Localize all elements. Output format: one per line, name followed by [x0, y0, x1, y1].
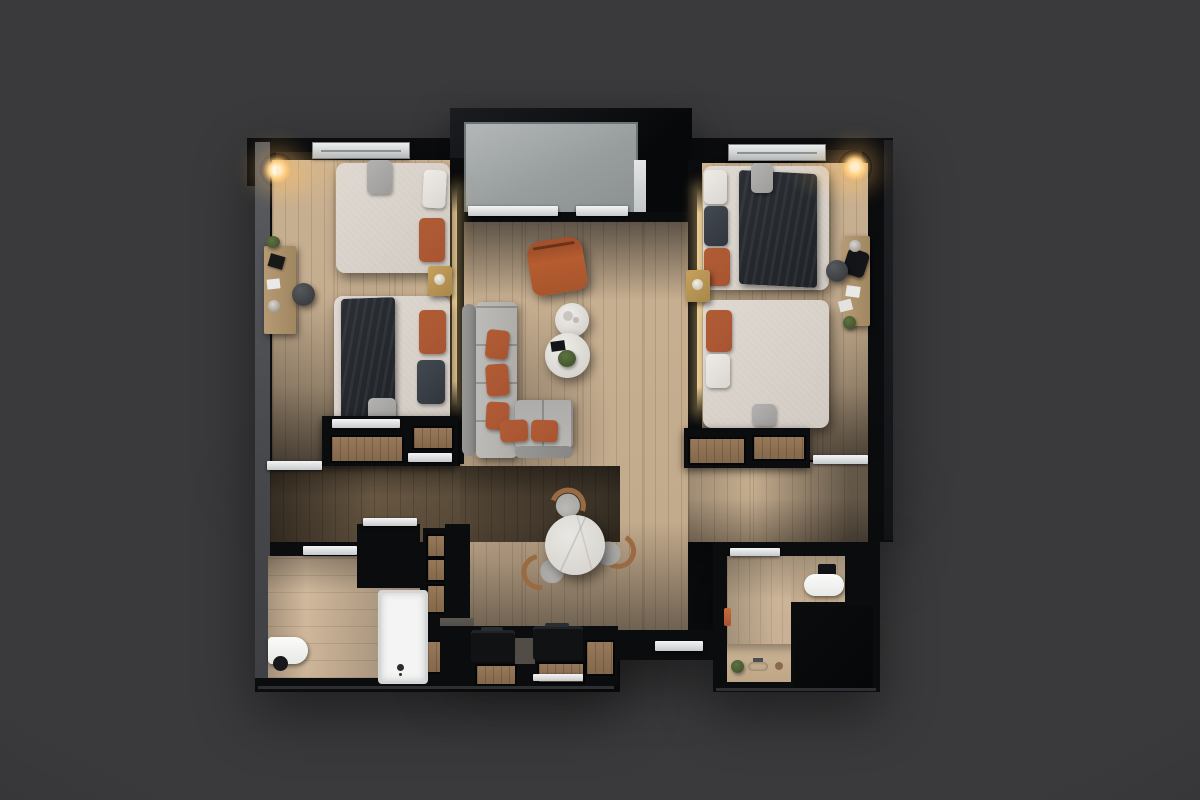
luggage-bench-2-handle [545, 623, 569, 627]
kitchen-wood-niche-1 [475, 664, 517, 686]
ceiling-light-right [838, 150, 872, 184]
wardrobe-left-panel-2 [412, 426, 454, 450]
floor-corridor-right [688, 462, 868, 542]
wardrobe-right-door-sill [813, 455, 868, 464]
entry-threshold-sill-left [468, 206, 558, 216]
sofa-seat-pad-2 [531, 420, 559, 443]
lamp-left [434, 274, 445, 285]
shelf-cubby-2 [426, 558, 446, 582]
floor-plan-render [0, 0, 1200, 800]
pillow-white-right-bottom [706, 354, 730, 388]
luggage-bench-1 [471, 630, 515, 662]
pillow-orange-right-bottom [706, 310, 732, 352]
sofa-pillow-1 [485, 329, 511, 360]
tray-left-desk [268, 300, 280, 312]
plant-coffee-table [558, 350, 576, 367]
shelf-cubby-3 [426, 584, 446, 614]
bath-left-door-sill-1 [303, 546, 357, 555]
pillow-white-right-top [704, 170, 727, 204]
vanity-soap [775, 662, 783, 670]
shower-dark-right [793, 606, 873, 688]
entry-threshold-sill-right [576, 206, 628, 216]
plant-right-desk [843, 316, 856, 329]
shelf-cubby-1 [426, 534, 446, 558]
corridor-left-door-sill [267, 461, 322, 470]
tray-right-desk [849, 240, 861, 252]
living-bottom-door-sill [655, 641, 703, 651]
outer-wall-right-face [884, 140, 893, 540]
coffee-table-small-dishes [563, 311, 573, 321]
paper-left-desk [267, 278, 281, 289]
towel-orange [724, 608, 731, 626]
lounge-chair-orange [525, 235, 589, 297]
pouf-left [292, 283, 315, 306]
led-strip-left-bedroom [452, 186, 457, 408]
bath-right-door-sill [730, 548, 780, 556]
outer-wall-bottom-edge-right [716, 688, 876, 691]
entry-landing-floor [464, 122, 638, 216]
pillow-white-left-top [422, 169, 447, 208]
outer-wall-bottom-edge-left [258, 686, 614, 689]
vanity-plant [731, 660, 744, 673]
entry-side-panel [634, 160, 646, 212]
sofa-pillow-2 [485, 363, 510, 397]
wardrobe-right-panel-1 [688, 437, 746, 465]
pillow-dark-left-bottom [417, 360, 445, 404]
sofa-back-bottom [515, 446, 573, 458]
toilet-left-mount [273, 656, 288, 671]
vanity-basin [748, 662, 768, 671]
dining-table [545, 515, 605, 575]
closet-mid-sill [363, 518, 417, 526]
closet-dark-mid [357, 524, 420, 588]
kitchen-gray-step [515, 638, 535, 664]
wardrobe-left-sill-top [332, 419, 400, 428]
window-bedroom-left [312, 142, 410, 159]
pillow-orange-left-top [419, 218, 445, 262]
wardrobe-left-panel-1 [330, 435, 404, 463]
bathtub-faucet [397, 664, 404, 671]
folded-blanket-right-top [751, 163, 773, 193]
paper-right-desk-1 [845, 285, 860, 298]
folded-blanket-left-top [367, 160, 392, 194]
wardrobe-left-sill-bottom [408, 453, 452, 462]
luggage-bench-2 [533, 626, 583, 660]
wardrobe-right-panel-2 [752, 435, 806, 461]
toilet-right [804, 574, 844, 596]
foot-runner-right-bottom [752, 404, 776, 426]
lamp-right [692, 279, 703, 290]
sofa-seat-pad-1 [499, 419, 528, 442]
sofa-back-left [462, 304, 476, 456]
plant-left-desk [266, 236, 280, 248]
window-bedroom-right [728, 144, 826, 161]
pillow-dark-right-top [704, 206, 728, 246]
pouf-right [826, 260, 848, 282]
kitchen-wood-niche-3 [585, 640, 615, 676]
ceiling-light-left [260, 153, 294, 187]
coffee-table-small [555, 303, 589, 337]
luggage-bench-1-handle [481, 627, 503, 631]
kitchen-silver-kick [533, 674, 583, 681]
pillow-orange-left-bottom [419, 310, 446, 354]
